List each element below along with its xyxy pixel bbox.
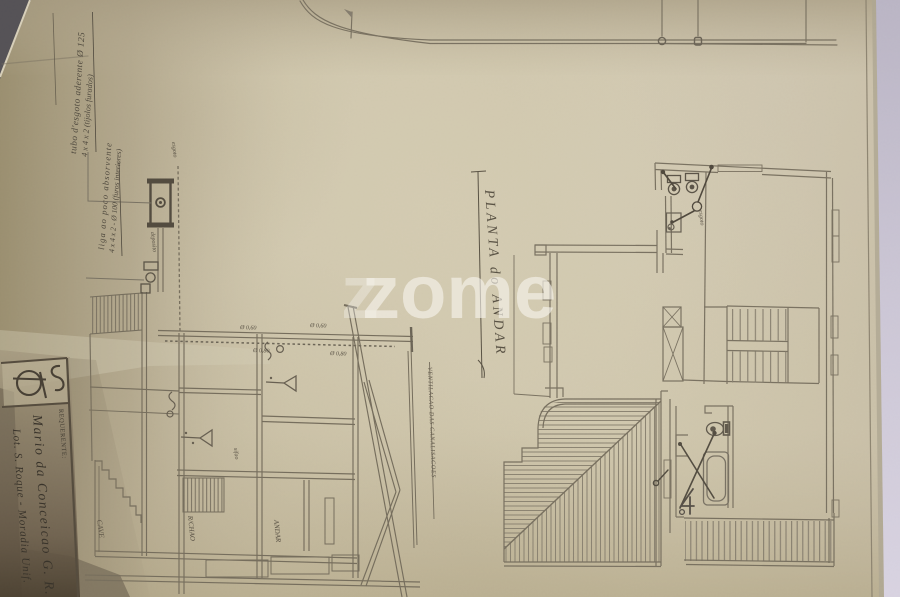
svg-text:zome: zome [362,250,556,335]
